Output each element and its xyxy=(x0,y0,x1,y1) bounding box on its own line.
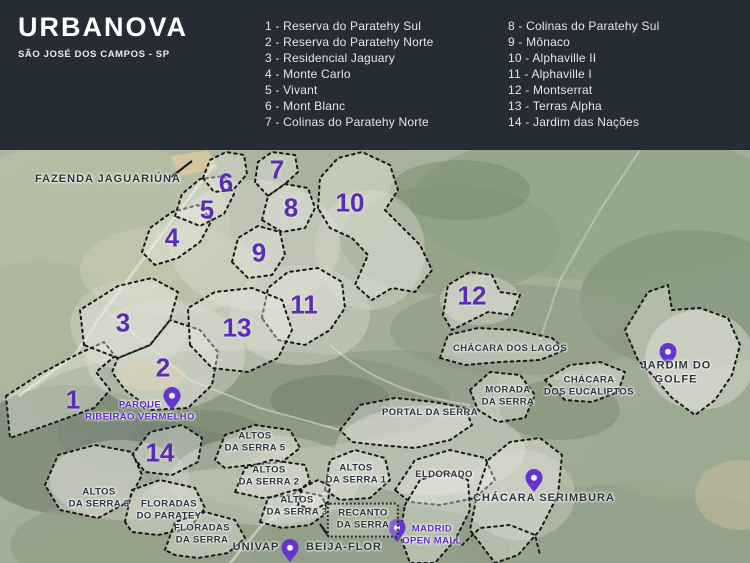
area-label-altos-da-serra-1: ALTOS DA SERRA 1 xyxy=(326,463,387,488)
region-number-13: 13 xyxy=(223,313,252,344)
header: URBANOVA SÃO JOSÉ DOS CAMPOS - SP 1 - Re… xyxy=(0,0,750,150)
area-label-univap: UNIVAP xyxy=(233,540,280,554)
area-label-chacara-dos-eucaliptos: CHÁCARA DOS EUCALIPTOS xyxy=(544,375,634,400)
legend-item-9: 9 - Mônaco xyxy=(508,34,659,50)
legend-item-6: 6 - Mont Blanc xyxy=(265,98,434,114)
area-label-recanto-da-serra: RECANTO DA SERRA xyxy=(327,503,399,538)
page-subtitle: SÃO JOSÉ DOS CAMPOS - SP xyxy=(18,49,188,60)
region-number-4: 4 xyxy=(165,223,179,254)
area-label-altos-da-serra-2: ALTOS DA SERRA 2 xyxy=(239,465,300,490)
title-block: URBANOVA SÃO JOSÉ DOS CAMPOS - SP xyxy=(18,12,188,60)
legend-item-14: 14 - Jardim das Nações xyxy=(508,114,659,130)
legend-item-13: 13 - Terras Alpha xyxy=(508,98,659,114)
area-label-altos-da-serra-3: ALTOS DA SERRA 3 xyxy=(267,495,328,520)
legend-item-3: 3 - Residencial Jaguary xyxy=(265,50,434,66)
area-label-chacara-serimbura: CHÁCARA SERIMBURA xyxy=(473,491,615,505)
region-number-10: 10 xyxy=(336,188,365,219)
legend-item-12: 12 - Montserrat xyxy=(508,82,659,98)
poi-label-parque-ribeirao-vermelho: PARQUE RIBEIRÃO VERMELHO xyxy=(85,400,195,425)
page-title: URBANOVA xyxy=(18,12,188,43)
region-number-3: 3 xyxy=(116,308,130,339)
area-label-beija-flor: BEIJA-FLOR xyxy=(306,540,382,554)
legend-item-5: 5 - Vivant xyxy=(265,82,434,98)
legend-item-8: 8 - Colinas do Paratehy Sul xyxy=(508,18,659,34)
region-number-2: 2 xyxy=(156,353,170,384)
region-number-6: 6 xyxy=(219,168,233,199)
area-label-fazenda-jaguariuna: FAZENDA JAGUARIÚNA xyxy=(35,172,181,186)
area-label-eldorado: ELDORADO xyxy=(415,469,473,481)
region-number-7: 7 xyxy=(270,155,284,186)
region-number-12: 12 xyxy=(458,281,487,312)
region-number-8: 8 xyxy=(284,193,298,224)
urbanova-map-infographic: URBANOVA SÃO JOSÉ DOS CAMPOS - SP 1 - Re… xyxy=(0,0,750,563)
region-number-14: 14 xyxy=(146,438,175,469)
area-label-altos-da-serra-6: ALTOS DA SERRA 6 xyxy=(69,487,130,512)
legend-item-10: 10 - Alphaville II xyxy=(508,50,659,66)
legend-item-1: 1 - Reserva do Paratehy Sul xyxy=(265,18,434,34)
area-label-floradas-do-paratey: FLORADAS DO PARATEY xyxy=(137,499,202,524)
satellite-map: 1 2 3 4 5 6 7 8 9 10 11 12 13 14 FAZENDA… xyxy=(0,150,750,563)
area-label-altos-da-serra-5: ALTOS DA SERRA 5 xyxy=(225,431,286,456)
area-label-jardim-do-golfe: JARDIM DO GOLFE xyxy=(639,359,713,388)
area-label-floradas-da-serra: FLORADAS DA SERRA xyxy=(174,523,230,548)
region-number-11: 11 xyxy=(290,290,318,321)
legend-column-1: 1 - Reserva do Paratehy Sul 2 - Reserva … xyxy=(265,18,434,130)
legend-item-11: 11 - Alphaville I xyxy=(508,66,659,82)
legend-item-2: 2 - Reserva do Paratehy Norte xyxy=(265,34,434,50)
area-label-chacara-dos-lagos: CHÁCARA DOS LAGOS xyxy=(453,343,567,355)
legend-column-2: 8 - Colinas do Paratehy Sul 9 - Mônaco 1… xyxy=(508,18,659,130)
poi-label-madrid-open-mall: MADRID OPEN MALL xyxy=(402,524,462,549)
region-number-9: 9 xyxy=(252,238,266,269)
legend-item-4: 4 - Monte Carlo xyxy=(265,66,434,82)
area-label-portal-da-serra: PORTAL DA SERRA xyxy=(382,407,478,419)
region-number-1: 1 xyxy=(66,385,80,416)
legend-item-7: 7 - Colinas do Paratehy Norte xyxy=(265,114,434,130)
area-label-morada-da-serra: MORADA DA SERRA xyxy=(482,385,534,410)
region-number-5: 5 xyxy=(200,195,214,226)
